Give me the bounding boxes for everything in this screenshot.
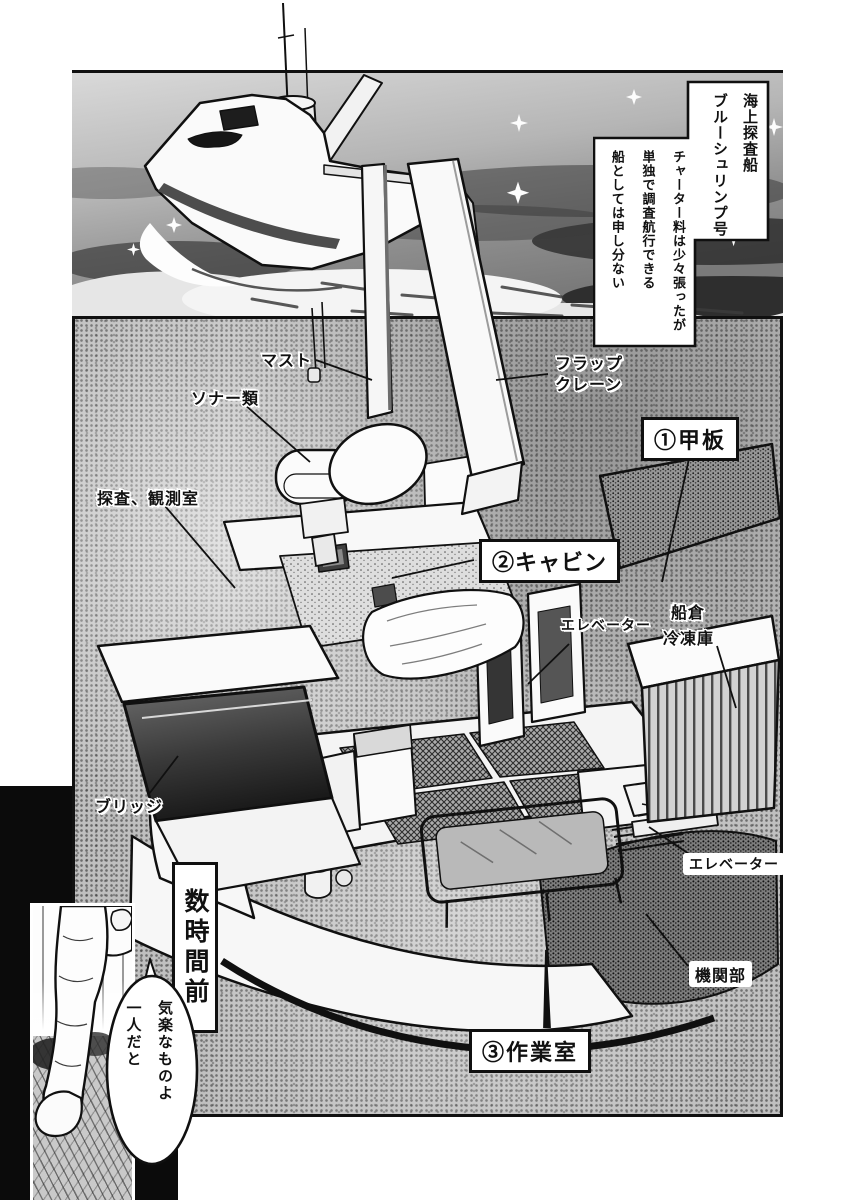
caption-title-line2: ブルーシュリンプ号 [704,93,734,243]
callout-work-room: ③作業室 [469,1029,591,1073]
caption-body: チャーター料は少々張ったが 単独で調査航行できる 船としては申し分ない [601,150,693,340]
label-freezer: 冷凍庫 [663,625,714,649]
manga-page: マスト ソナー類 フラップ クレーン 探査、観測室 エレベーター 船倉 冷凍庫 … [0,0,849,1200]
label-bridge: ブリッジ [95,793,163,817]
caption-title-line1: 海上探査船 [734,93,764,243]
label-flap-crane: フラップ クレーン [555,355,623,397]
speech-line2: 一人だと [117,1000,149,1150]
speech-line1: 気楽なものよ [149,1000,181,1150]
label-elevator-upper: エレベーター [561,615,651,635]
label-flap-crane-line1: フラップ [555,355,623,376]
callout-cabin: ②キャビン [479,539,620,583]
caption-body-line2: 単独で調査航行できる [632,150,663,340]
speech-text: 気楽なものよ 一人だと [118,1000,180,1150]
label-flap-crane-line2: クレーン [555,376,623,397]
label-survey-room: 探査、観測室 [97,485,199,509]
label-sonar: ソナー類 [191,385,259,409]
label-mast: マスト [261,347,312,371]
label-elevator-lower: エレベーター [683,853,785,875]
caption-body-line1: チャーター料は少々張ったが [662,150,693,340]
caption-title: 海上探査船 ブルーシュリンプ号 [700,93,764,243]
caption-body-line3: 船としては申し分ない [601,150,632,340]
label-engine-room: 機関部 [689,961,752,987]
label-hold: 船倉 [671,599,705,623]
callout-deck: ①甲板 [641,417,739,461]
